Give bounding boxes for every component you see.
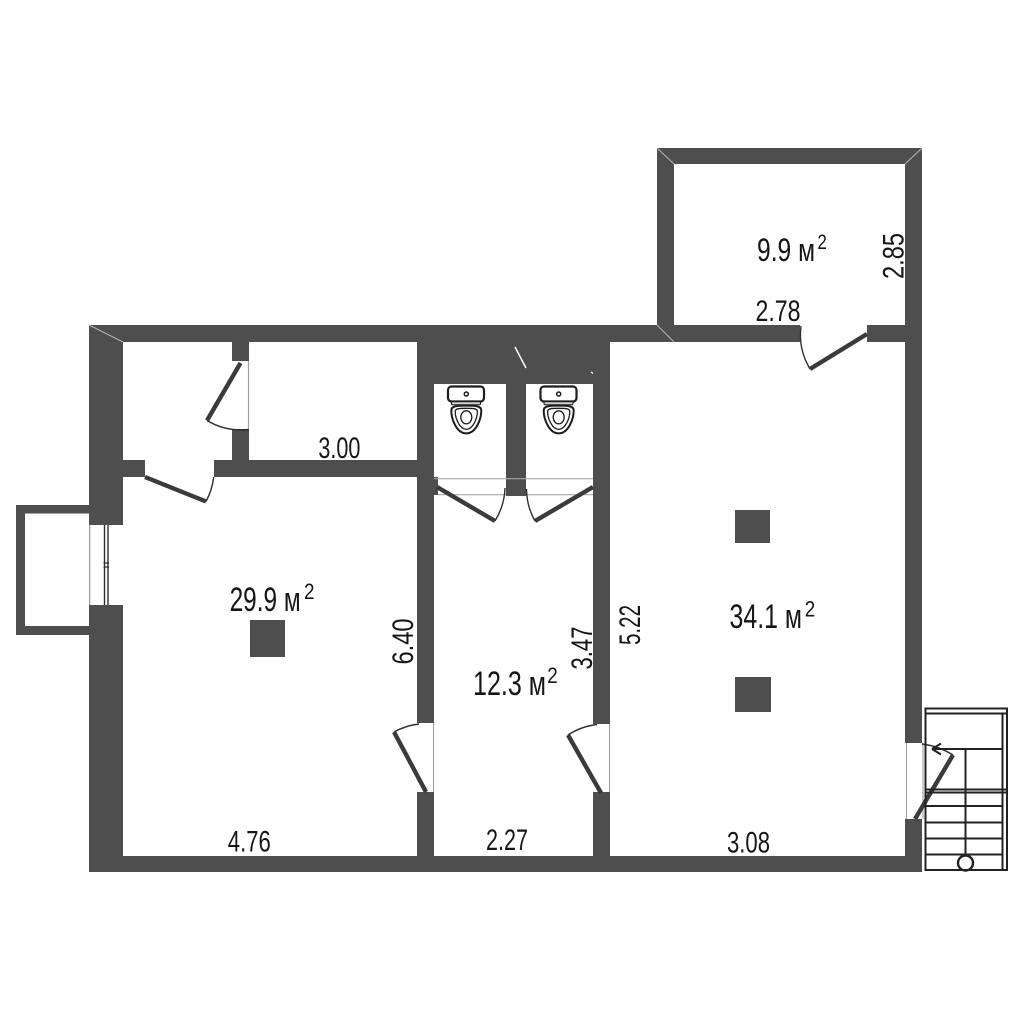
svg-text:2: 2 [817,231,827,254]
svg-text:6.40: 6.40 [387,619,420,665]
svg-text:3.08: 3.08 [727,827,770,860]
svg-text:29.9 м: 29.9 м [230,581,301,619]
svg-text:5.22: 5.22 [614,605,647,645]
svg-text:3.00: 3.00 [318,432,360,465]
svg-text:2.27: 2.27 [486,824,528,857]
svg-text:3.47: 3.47 [566,627,599,670]
svg-text:4.76: 4.76 [228,826,271,859]
svg-text:2.85: 2.85 [878,233,911,279]
svg-text:2.78: 2.78 [756,295,801,328]
svg-text:12.3 м: 12.3 м [473,665,546,703]
svg-text:2: 2 [547,663,558,688]
svg-text:9.9 м: 9.9 м [757,232,815,268]
svg-text:34.1 м: 34.1 м [730,598,803,636]
svg-text:2: 2 [805,597,816,622]
svg-text:2: 2 [304,579,315,604]
